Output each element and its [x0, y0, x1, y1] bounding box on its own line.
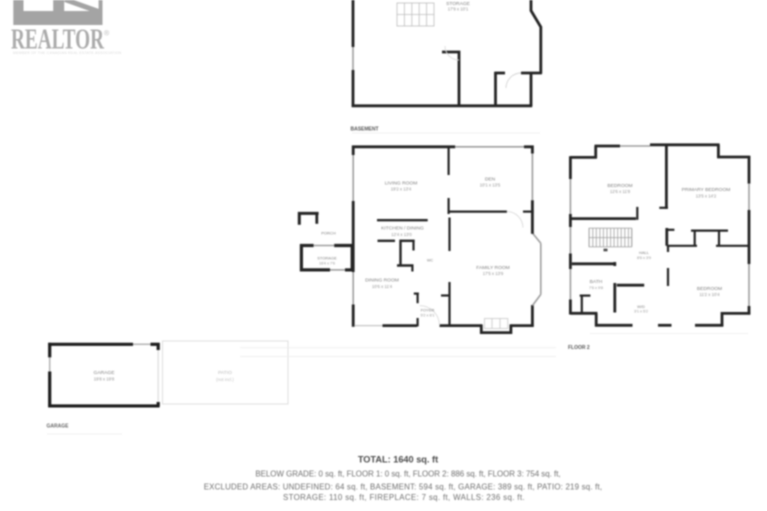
svg-text:®: ® [104, 30, 110, 38]
svg-text:16'4 x 7'6: 16'4 x 7'6 [319, 262, 335, 266]
svg-text:BELOW GRADE: 0 sq. ft, FLOOR 1: BELOW GRADE: 0 sq. ft, FLOOR 1: 0 sq. ft… [255, 470, 560, 479]
svg-text:KITCHEN / DINING: KITCHEN / DINING [381, 226, 424, 232]
svg-text:FOYER: FOYER [421, 308, 435, 313]
svg-text:W/D: W/D [637, 304, 645, 309]
svg-text:BATH: BATH [590, 279, 603, 285]
svg-text:12'6 x 11'8: 12'6 x 11'8 [610, 189, 631, 194]
svg-text:12'4 x 13'0: 12'4 x 13'0 [391, 232, 412, 237]
svg-text:5'2 x 6'1: 5'2 x 6'1 [421, 314, 435, 318]
svg-text:GARAGE: GARAGE [94, 370, 116, 376]
svg-text:STORAGE: STORAGE [317, 256, 337, 261]
svg-text:TOTAL: 1640 sq. ft: TOTAL: 1640 sq. ft [358, 455, 438, 465]
svg-text:BASEMENT: BASEMENT [351, 127, 379, 133]
svg-text:19'8 x 19'8: 19'8 x 19'8 [94, 377, 115, 382]
svg-text:3'1 x 5'2: 3'1 x 5'2 [634, 310, 648, 314]
svg-text:MEMBER OF THE CANADIAN REAL ES: MEMBER OF THE CANADIAN REAL ESTATE ASSOC… [13, 51, 122, 55]
svg-text:13'5 x 14'2: 13'5 x 14'2 [696, 194, 717, 199]
svg-text:STORAGE: 110 sq. ft, FIREPLACE: STORAGE: 110 sq. ft, FIREPLACE: 7 sq. ft… [283, 493, 525, 502]
svg-text:10'6 x 11'4: 10'6 x 11'4 [372, 284, 393, 289]
svg-text:EXCLUDED AREAS: UNDEFINED: 64: EXCLUDED AREAS: UNDEFINED: 64 sq. ft, BA… [204, 483, 603, 492]
svg-text:17'9 x 10'1: 17'9 x 10'1 [448, 7, 469, 12]
svg-text:PATIO: PATIO [218, 370, 232, 376]
svg-text:PORCH: PORCH [321, 231, 336, 236]
svg-text:(not incl.): (not incl.) [216, 377, 234, 382]
svg-text:PRIMARY BEDROOM: PRIMARY BEDROOM [682, 187, 731, 193]
svg-text:FAMILY ROOM: FAMILY ROOM [476, 265, 510, 271]
svg-text:BEDROOM: BEDROOM [607, 183, 632, 189]
svg-text:FLOOR 2: FLOOR 2 [568, 345, 590, 351]
svg-text:10'1 x 13'5: 10'1 x 13'5 [480, 183, 501, 188]
svg-text:7'6 x 9'8: 7'6 x 9'8 [589, 286, 603, 290]
svg-text:GARAGE: GARAGE [47, 424, 70, 430]
svg-text:DINING ROOM: DINING ROOM [365, 278, 399, 284]
svg-text:BEDROOM: BEDROOM [697, 286, 722, 292]
svg-text:17'5 x 13'9: 17'5 x 13'9 [483, 271, 504, 276]
svg-text:8'6 x 3'9: 8'6 x 3'9 [637, 256, 651, 260]
svg-text:WC: WC [427, 259, 434, 263]
svg-text:11'2 x 10'4: 11'2 x 10'4 [699, 292, 720, 297]
svg-text:19'2 x 13'4: 19'2 x 13'4 [391, 187, 412, 192]
svg-text:HALL: HALL [639, 250, 650, 255]
